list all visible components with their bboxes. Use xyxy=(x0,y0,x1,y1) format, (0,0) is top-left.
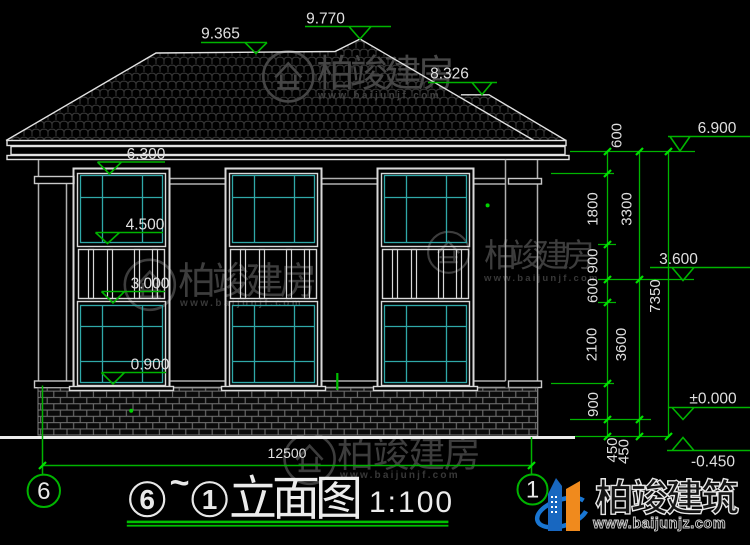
svg-text:www.baijunjf.com: www.baijunjf.com xyxy=(317,91,441,102)
svg-text:9.365: 9.365 xyxy=(201,26,240,43)
svg-text:2100: 2100 xyxy=(584,328,601,361)
svg-text:-0.450: -0.450 xyxy=(691,454,735,471)
svg-text:6.300: 6.300 xyxy=(127,146,166,163)
svg-text:±0.000: ±0.000 xyxy=(689,391,737,408)
svg-text:12500: 12500 xyxy=(268,445,307,461)
svg-text:0.900: 0.900 xyxy=(131,357,170,374)
svg-text:~: ~ xyxy=(170,464,190,502)
svg-text:3.000: 3.000 xyxy=(131,276,170,293)
svg-text:6: 6 xyxy=(139,484,155,515)
svg-text:7350: 7350 xyxy=(647,279,664,312)
svg-text:www.baijunjf.com: www.baijunjf.com xyxy=(483,273,600,284)
svg-text:900: 900 xyxy=(585,392,602,417)
svg-text:450: 450 xyxy=(616,439,633,464)
svg-text:1: 1 xyxy=(526,477,539,504)
svg-text:6: 6 xyxy=(37,478,50,505)
svg-text:1:100: 1:100 xyxy=(369,486,454,519)
svg-text:3600: 3600 xyxy=(613,328,630,361)
svg-text:1: 1 xyxy=(202,484,218,515)
svg-text:8.326: 8.326 xyxy=(430,66,469,83)
svg-text:1800: 1800 xyxy=(585,192,602,225)
svg-text:4.500: 4.500 xyxy=(126,217,165,234)
svg-text:6.900: 6.900 xyxy=(698,120,737,137)
svg-text:9.770: 9.770 xyxy=(306,11,345,28)
svg-text:900: 900 xyxy=(585,248,602,273)
svg-text:600: 600 xyxy=(609,123,626,148)
svg-text:600: 600 xyxy=(585,278,602,303)
svg-text:3.600: 3.600 xyxy=(659,251,698,268)
svg-text:www.baijunjf.com: www.baijunjf.com xyxy=(179,298,303,309)
svg-text:3300: 3300 xyxy=(619,192,636,225)
svg-text:www.baijunjz.com: www.baijunjz.com xyxy=(592,516,726,532)
